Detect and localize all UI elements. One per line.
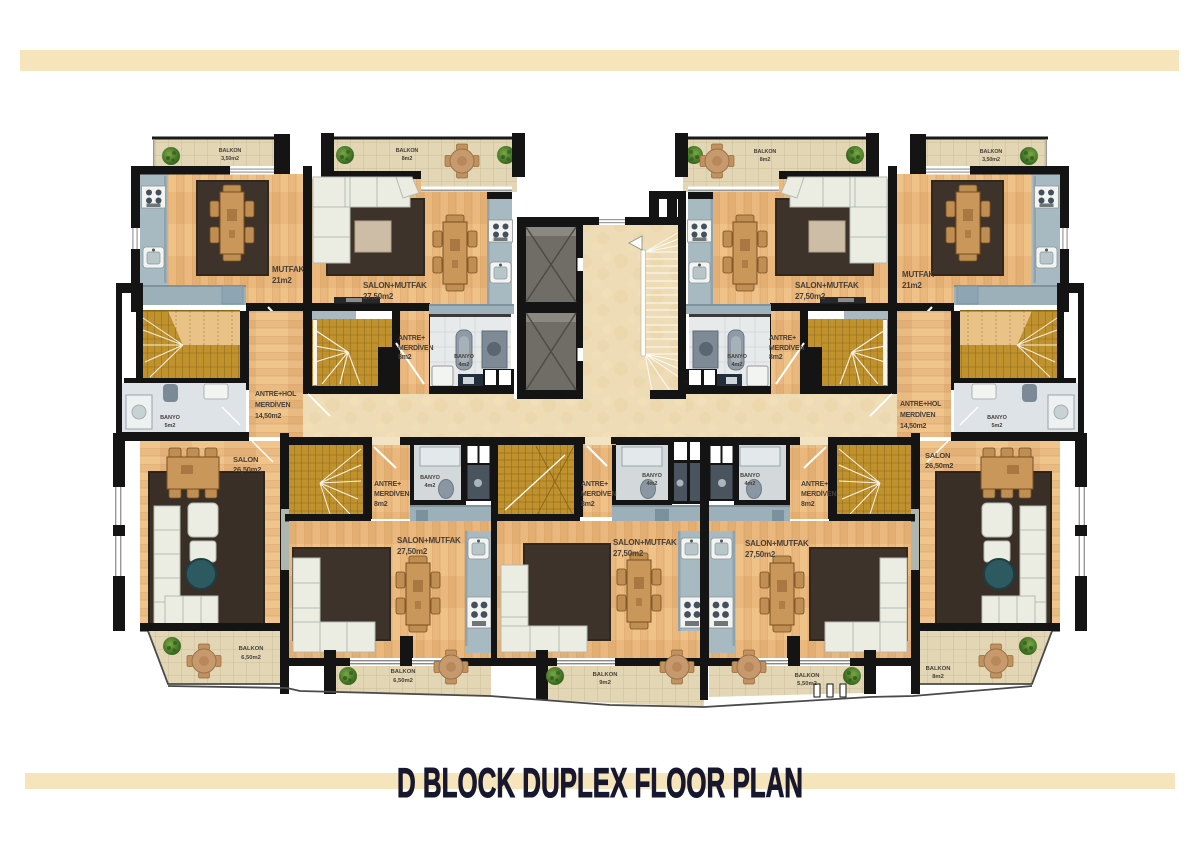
svg-text:14,50m2: 14,50m2 xyxy=(900,423,927,430)
svg-text:MERDİVEN: MERDİVEN xyxy=(374,490,409,498)
svg-text:5,50m2: 5,50m2 xyxy=(797,681,817,687)
svg-text:26,50m2: 26,50m2 xyxy=(925,461,953,470)
svg-text:8m2: 8m2 xyxy=(398,354,412,361)
svg-text:BANYO: BANYO xyxy=(740,473,761,479)
svg-text:ANTRE+: ANTRE+ xyxy=(581,481,608,488)
svg-text:D BLOCK DUPLEX FLOOR PLAN: D BLOCK DUPLEX FLOOR PLAN xyxy=(397,759,803,806)
svg-text:4m2: 4m2 xyxy=(424,483,435,489)
svg-text:8m2: 8m2 xyxy=(769,354,783,361)
svg-text:4m2: 4m2 xyxy=(731,362,742,368)
svg-text:BALKON: BALKON xyxy=(239,646,264,652)
svg-text:MUTFAK: MUTFAK xyxy=(902,270,935,279)
svg-text:SALON+MUTFAK: SALON+MUTFAK xyxy=(363,281,427,290)
svg-text:8m2: 8m2 xyxy=(374,501,388,508)
svg-text:MERDİVEN: MERDİVEN xyxy=(398,344,433,352)
svg-text:27,50m2: 27,50m2 xyxy=(397,547,428,556)
svg-text:MUTFAK: MUTFAK xyxy=(272,265,305,274)
svg-text:ANTRE+: ANTRE+ xyxy=(801,481,828,488)
svg-text:8m2: 8m2 xyxy=(801,501,815,508)
svg-text:BANYO: BANYO xyxy=(642,473,663,479)
svg-text:14,50m2: 14,50m2 xyxy=(255,413,282,420)
svg-text:5m2: 5m2 xyxy=(164,423,175,429)
svg-text:BALKON: BALKON xyxy=(980,149,1003,155)
svg-text:27,50m2: 27,50m2 xyxy=(745,550,776,559)
svg-text:BANYO: BANYO xyxy=(987,415,1008,421)
svg-text:MERDİVEN: MERDİVEN xyxy=(769,344,804,352)
svg-text:BANYO: BANYO xyxy=(454,354,475,360)
svg-text:SALON+MUTFAK: SALON+MUTFAK xyxy=(613,538,677,547)
svg-text:BANYO: BANYO xyxy=(727,354,748,360)
svg-text:8m2: 8m2 xyxy=(760,157,771,163)
svg-text:BALKON: BALKON xyxy=(593,672,618,678)
svg-text:21m2: 21m2 xyxy=(272,276,292,285)
svg-text:BALKON: BALKON xyxy=(795,673,820,679)
svg-text:21m2: 21m2 xyxy=(902,281,922,290)
svg-text:MERDİVEN: MERDİVEN xyxy=(581,490,616,498)
svg-text:SALON+MUTFAK: SALON+MUTFAK xyxy=(397,536,461,545)
svg-text:ANTRE+: ANTRE+ xyxy=(769,335,796,342)
svg-text:BALKON: BALKON xyxy=(754,149,777,155)
svg-text:BANYO: BANYO xyxy=(160,415,181,421)
svg-text:4m2: 4m2 xyxy=(646,481,657,487)
svg-text:SALON+MUTFAK: SALON+MUTFAK xyxy=(745,539,809,548)
svg-text:ANTRE+: ANTRE+ xyxy=(374,481,401,488)
svg-text:ANTRE+: ANTRE+ xyxy=(398,335,425,342)
svg-text:BALKON: BALKON xyxy=(396,148,419,154)
svg-text:MERDİVEN: MERDİVEN xyxy=(255,401,290,409)
svg-text:4m2: 4m2 xyxy=(458,362,469,368)
svg-text:ANTRE+HOL: ANTRE+HOL xyxy=(900,401,942,408)
svg-text:BALKON: BALKON xyxy=(391,669,416,675)
svg-text:SALON: SALON xyxy=(925,451,950,460)
svg-text:27,50m2: 27,50m2 xyxy=(795,292,826,301)
svg-text:5m2: 5m2 xyxy=(991,423,1002,429)
svg-text:SALON: SALON xyxy=(233,455,258,464)
svg-text:BALKON: BALKON xyxy=(219,148,242,154)
svg-text:6,50m2: 6,50m2 xyxy=(241,655,261,661)
svg-text:SALON+MUTFAK: SALON+MUTFAK xyxy=(795,281,859,290)
svg-text:8m2: 8m2 xyxy=(581,501,595,508)
svg-text:9m2: 9m2 xyxy=(599,680,611,686)
svg-text:6,50m2: 6,50m2 xyxy=(393,678,413,684)
svg-text:MERDİVEN: MERDİVEN xyxy=(801,490,836,498)
svg-text:3,50m2: 3,50m2 xyxy=(221,156,239,162)
svg-text:BANYO: BANYO xyxy=(420,475,441,481)
svg-text:3,50m2: 3,50m2 xyxy=(982,157,1000,163)
svg-text:ANTRE+HOL: ANTRE+HOL xyxy=(255,391,297,398)
svg-text:4m2: 4m2 xyxy=(744,481,755,487)
svg-text:8m2: 8m2 xyxy=(402,156,413,162)
svg-text:26,50m2: 26,50m2 xyxy=(233,465,261,474)
svg-text:27,50m2: 27,50m2 xyxy=(363,292,394,301)
svg-text:BALKON: BALKON xyxy=(926,666,951,672)
svg-text:27,50m2: 27,50m2 xyxy=(613,549,644,558)
svg-text:MERDİVEN: MERDİVEN xyxy=(900,411,935,419)
svg-text:8m2: 8m2 xyxy=(932,674,944,680)
